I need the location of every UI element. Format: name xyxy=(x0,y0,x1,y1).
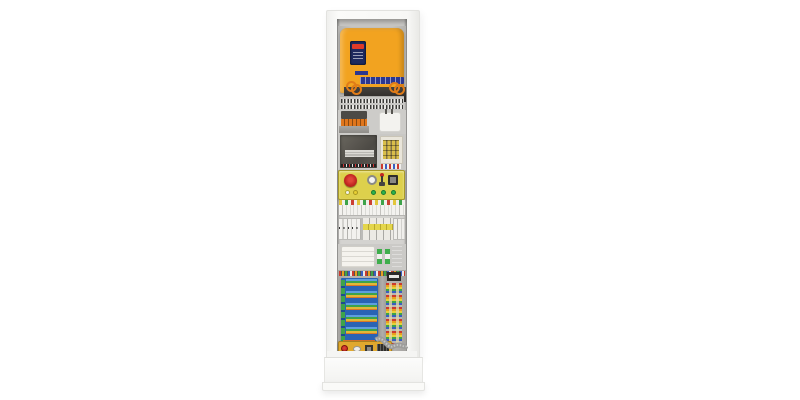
indicator-yellow xyxy=(353,190,358,195)
plinth xyxy=(324,357,423,385)
green-terminal-module xyxy=(376,248,383,265)
controller-module xyxy=(340,135,377,168)
vfd-drive xyxy=(340,28,404,93)
emergency-stop-button xyxy=(344,174,357,187)
breaker-dots xyxy=(339,227,361,229)
circuit-breakers xyxy=(339,219,361,239)
filter-box xyxy=(379,112,401,132)
pcb-wiring xyxy=(346,279,377,337)
cabinet-opening xyxy=(337,19,407,352)
fuse-block xyxy=(380,136,403,164)
wire xyxy=(391,109,393,114)
terminal-strip xyxy=(341,105,403,109)
wire xyxy=(385,109,387,114)
module-row xyxy=(338,244,406,270)
toggle-switch-base xyxy=(379,182,385,186)
transformer-base xyxy=(339,126,369,133)
controller-row xyxy=(338,134,406,170)
vfd-mini-label xyxy=(355,71,368,75)
vfd-display xyxy=(350,41,366,65)
wire-loop xyxy=(351,84,362,95)
indicator-green xyxy=(371,190,376,195)
terminal-units xyxy=(394,219,405,239)
green-terminal xyxy=(385,249,390,254)
transformer xyxy=(341,111,367,119)
photo-canvas xyxy=(0,0,800,400)
vfd-keypad xyxy=(353,52,363,61)
plinth-foot xyxy=(322,382,425,391)
relays xyxy=(363,218,393,240)
vfd-readout xyxy=(352,44,364,49)
wire-bundle xyxy=(381,164,401,169)
pcb-module-box xyxy=(341,246,375,268)
panel-socket xyxy=(388,175,398,185)
socket-inner xyxy=(390,177,396,183)
fuse-grid xyxy=(383,140,399,159)
din-rail-breakers xyxy=(339,218,405,240)
transformer-row xyxy=(338,110,406,135)
green-terminal xyxy=(385,259,390,264)
din-rail-terminals xyxy=(339,200,405,216)
terminal-bodies xyxy=(339,205,405,215)
green-terminal xyxy=(377,249,382,254)
pcb-terminal-rail xyxy=(341,280,345,346)
terminal-strip xyxy=(341,99,403,103)
round-socket xyxy=(367,175,377,185)
indicator-green xyxy=(381,190,386,195)
transformer-terminals xyxy=(341,119,367,126)
green-terminal-module xyxy=(384,248,391,265)
relay-label-band xyxy=(363,224,393,230)
junction-label xyxy=(389,275,399,278)
blue-card xyxy=(392,246,402,267)
green-terminal xyxy=(377,259,382,264)
indicator-green xyxy=(391,190,396,195)
indicator-white xyxy=(345,190,350,195)
junction-box xyxy=(387,272,401,281)
wiring-bay xyxy=(338,270,406,352)
module-terminals xyxy=(341,164,376,167)
wire-loop xyxy=(394,84,405,95)
module-label xyxy=(345,150,374,157)
terminal-plate xyxy=(340,96,404,111)
inspection-panel xyxy=(338,170,405,200)
